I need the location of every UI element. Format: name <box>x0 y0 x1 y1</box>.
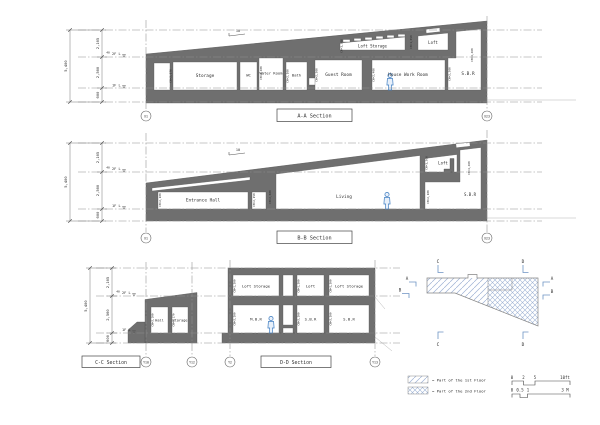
section-aa-building: 10 <box>146 21 487 103</box>
section-title-bb: B-B Section <box>297 236 331 242</box>
slope-value: 10 <box>236 148 240 152</box>
room-label-loft-storage-left: Loft Storage <box>242 284 271 289</box>
second-floor-hatch <box>488 278 538 326</box>
dim-seg-base: 600 <box>105 334 110 342</box>
ch-label: CH=4,460 <box>470 48 474 62</box>
section-dd-building <box>222 268 392 351</box>
dim-seg-top: 2,165 <box>105 277 110 288</box>
section-mark-c: C <box>437 342 440 348</box>
room-label-storage: Storage <box>196 73 215 79</box>
ch-label: CH=2,170 <box>169 69 173 83</box>
scale-bar-ft <box>512 381 570 385</box>
scale-m-0: 0 <box>511 388 514 393</box>
scale-m-1: 1 <box>527 388 530 393</box>
entry-steps <box>128 322 145 343</box>
grid-label: X1 <box>144 236 148 240</box>
ch-label: CH=1,300 <box>425 156 429 170</box>
room-label-loft: Loft <box>428 40 438 45</box>
key-plan: C D C D A B A B <box>399 259 554 348</box>
room-label-entrance-hall: Entrance Hall <box>186 198 221 204</box>
slope-value: 10 <box>236 29 240 33</box>
room-label-sbr: S.B.R <box>461 71 475 77</box>
legend-label-2f: = Part of the 2nd Floor <box>432 389 487 394</box>
room-label-house-work-room: House Work Room <box>388 72 428 78</box>
scale-ft-0: 0 <box>511 375 514 380</box>
room-label-wc: WC <box>246 73 251 78</box>
section-title-dd: D-D Section <box>280 360 312 366</box>
room-label-living: Living <box>336 194 352 200</box>
dim-seg-top: 2,165 <box>95 38 100 49</box>
ch-label: CH=2,200 <box>329 312 333 325</box>
legend: = Part of the 1st Floor = Part of the 2n… <box>408 376 487 394</box>
ch-label: CH=2,200 <box>233 312 237 325</box>
grid-label: Y10 <box>143 360 149 364</box>
scale-ft-10: 10ft <box>560 375 570 380</box>
ch-label: CH=2,400 <box>259 66 263 80</box>
ch-label: CH=2,200 <box>297 312 301 325</box>
room-label-hall: Hall <box>155 319 164 323</box>
dim-seg-mid: 2,560 <box>95 66 100 78</box>
slope-mark-bb: 10 <box>229 148 245 155</box>
ch-label: CH=2,100 <box>286 69 290 83</box>
room-label-sbr-center: S.B.R <box>305 317 317 322</box>
dim-seg-mid: 2,560 <box>95 184 100 196</box>
scale-m-05: 0.5 <box>516 388 524 393</box>
dim-seg-base: 600 <box>95 211 100 219</box>
ch-label: CH=2,100 <box>426 190 430 204</box>
dim-offset: 40 <box>116 290 120 294</box>
first-floor-hatch <box>427 278 488 306</box>
ch-label: CH=4,460 <box>467 161 471 175</box>
level-2f-label: 2F L <box>112 167 121 171</box>
dim-seg-mid: 2,560 <box>105 309 110 321</box>
legend-label-1f: = Part of the 1st Floor <box>432 378 487 383</box>
level-1f-label: 1F L <box>112 204 121 208</box>
ch-label: CH=2,100 <box>158 193 162 207</box>
level-1f-label: 1F L <box>112 84 121 88</box>
ch-label: CH=1,300 <box>340 39 344 53</box>
grid-label: Y13 <box>372 360 378 364</box>
section-title-aa: A-A Section <box>297 114 331 120</box>
room-label-loft: Loft <box>306 284 315 289</box>
ch-label: CH=2,600 <box>268 190 272 204</box>
dim-seg-top: 2,165 <box>95 152 100 163</box>
level-2f-label: 2F L <box>112 52 121 56</box>
dim-total: 5,400 <box>63 60 68 72</box>
room-label-bath: Bath <box>292 73 301 78</box>
room-label-mbr: M.B.R <box>250 317 262 322</box>
room-label-guest-room: Guest Room <box>325 72 352 78</box>
scale-bars: 0 2 5 10ft 0 0.5 1 3 M <box>511 375 571 398</box>
dim-total: 5,400 <box>63 176 68 188</box>
scale-ft-5: 5 <box>534 375 537 380</box>
dim-seg-base: 600 <box>95 91 100 99</box>
scale-m-3: 3 M <box>561 388 569 393</box>
ch-label: CH=2,400 <box>372 68 376 82</box>
dim-offset: 40 <box>106 51 110 55</box>
ch-label: CH=2,300 <box>315 68 319 82</box>
ch-label: CH=2,170 <box>172 313 176 326</box>
room-label-loft: Loft <box>438 161 448 166</box>
dim-chain-aa: 5,400 2,165 2,560 600 40 2F L 1F L <box>63 28 126 104</box>
grid-label: X23 <box>484 114 490 118</box>
architectural-sections-sheet: 10 10 <box>0 0 600 425</box>
section-mark-a: A <box>406 276 409 281</box>
scale-bar-m <box>512 394 570 398</box>
section-mark-c: C <box>437 259 440 265</box>
room-label-water-room: Water Room <box>260 71 284 76</box>
ch-label: CH=1,650 <box>409 35 413 49</box>
section-mark-d: D <box>522 342 525 348</box>
grid-label: X23 <box>484 236 490 240</box>
grid-label: Y12 <box>189 360 195 364</box>
legend-swatch-2f <box>408 387 428 394</box>
room-label-loft-storage: Loft Storage <box>358 44 387 49</box>
section-title-cc: C-C Section <box>95 360 127 366</box>
room-label-sbr-right: S.B.R <box>343 317 355 322</box>
ch-label: CH=2,150 <box>252 193 256 207</box>
section-mark-b: B <box>399 288 402 293</box>
section-mark-a: A <box>551 276 554 281</box>
dim-offset: 40 <box>106 166 110 170</box>
ch-label: CH=1,300 <box>233 279 237 292</box>
grid-label: Y2 <box>228 360 232 364</box>
section-mark-b: B <box>551 289 554 294</box>
ch-label: CH=2,300 <box>448 67 452 81</box>
level-2f-label: 2F L <box>122 291 131 295</box>
ch-label: CH=2,100 <box>151 313 155 326</box>
grid-label: X1 <box>144 114 148 118</box>
room-label-sbr: S.B.R <box>464 192 477 197</box>
dim-total: 5,400 <box>83 300 88 312</box>
section-mark-d: D <box>522 259 525 265</box>
level-1f-label: 1F L <box>122 328 131 332</box>
legend-swatch-1f <box>408 376 428 383</box>
drawing-canvas: 10 10 <box>0 0 600 425</box>
ch-label: CH=1,300 <box>297 279 301 292</box>
room-label-loft-storage-right: Loft Storage <box>335 284 364 289</box>
dim-chain-bb: 5,400 2,165 2,560 600 40 2F L 1F L <box>63 141 126 223</box>
scale-ft-2: 2 <box>522 375 525 380</box>
ch-label: CH=1,300 <box>329 279 333 292</box>
